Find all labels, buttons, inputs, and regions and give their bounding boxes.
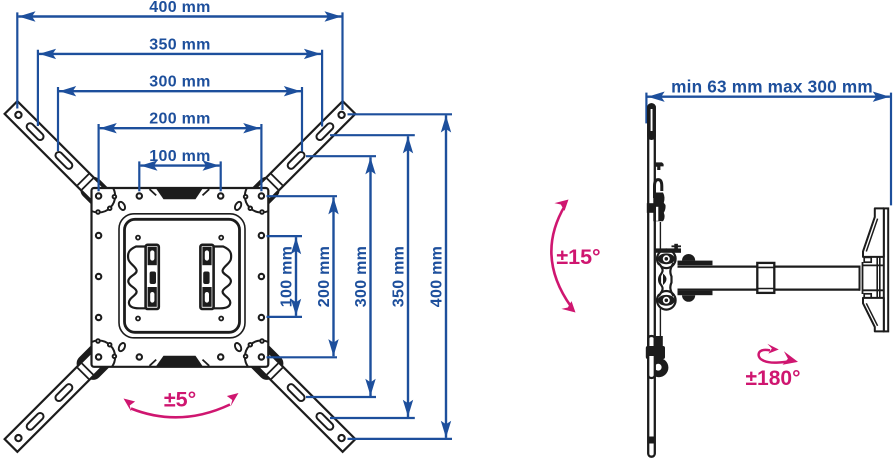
svg-text:350 mm: 350 mm <box>390 246 407 307</box>
svg-text:min 63 mm max 300 mm: min 63 mm max 300 mm <box>671 77 873 97</box>
svg-text:400 mm: 400 mm <box>428 246 445 307</box>
svg-text:100 mm: 100 mm <box>278 246 295 307</box>
svg-text:200 mm: 200 mm <box>316 246 333 307</box>
svg-text:200 mm: 200 mm <box>149 111 210 128</box>
svg-text:±15°: ±15° <box>556 245 600 269</box>
svg-text:±5°: ±5° <box>164 388 196 412</box>
svg-text:400 mm: 400 mm <box>149 0 210 16</box>
svg-text:100 mm: 100 mm <box>149 148 210 165</box>
svg-text:300 mm: 300 mm <box>149 74 210 91</box>
svg-text:±180°: ±180° <box>746 367 801 390</box>
svg-text:300 mm: 300 mm <box>353 246 370 307</box>
svg-text:350 mm: 350 mm <box>149 36 210 53</box>
